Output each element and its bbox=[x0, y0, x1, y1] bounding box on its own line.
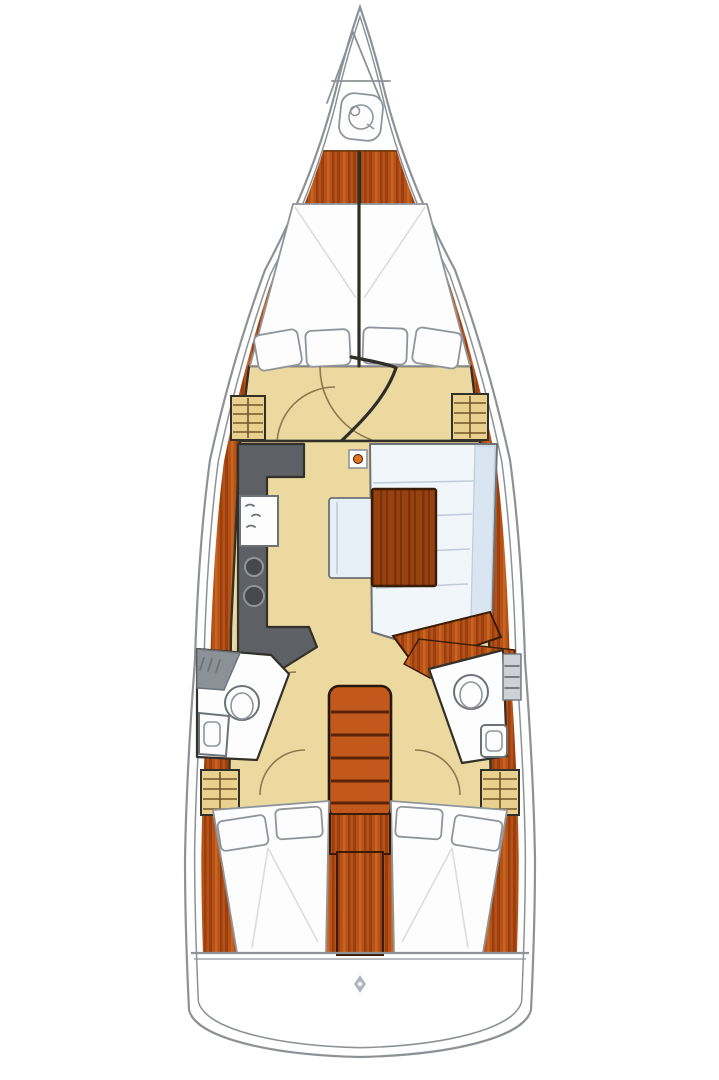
pillow bbox=[395, 806, 443, 839]
burner-icon bbox=[244, 586, 264, 606]
aft-cabins bbox=[213, 801, 507, 955]
toilet-icon bbox=[225, 686, 259, 720]
toilet-bowl bbox=[454, 675, 488, 709]
windlass-housing bbox=[338, 92, 385, 142]
forward-cabin-floor bbox=[240, 366, 480, 441]
salon-bench bbox=[329, 498, 373, 578]
pillow bbox=[451, 814, 503, 851]
pillow bbox=[411, 327, 462, 370]
engine-box-lower bbox=[337, 852, 383, 955]
forward-cabin bbox=[231, 152, 488, 446]
boat-floorplan bbox=[0, 0, 719, 1080]
salon-table bbox=[372, 489, 436, 586]
companionway-stairs bbox=[329, 686, 391, 818]
windlass-icon bbox=[338, 92, 385, 142]
engine-box-upper bbox=[330, 814, 390, 854]
companionway bbox=[329, 686, 391, 818]
burner-icon bbox=[245, 558, 263, 576]
toilet-icon bbox=[454, 675, 488, 709]
forward-locker-port bbox=[231, 396, 265, 440]
pillow bbox=[305, 329, 351, 367]
toilet-bowl bbox=[225, 686, 259, 720]
galley-sink bbox=[240, 496, 278, 546]
floorplan-svg bbox=[0, 0, 719, 1080]
pillow bbox=[217, 814, 269, 851]
sink-counter bbox=[481, 725, 507, 757]
pillow bbox=[253, 328, 303, 371]
sofa-back-cushion bbox=[471, 446, 495, 617]
pillow bbox=[275, 806, 323, 839]
forward-locker-starboard bbox=[452, 394, 488, 440]
logo-dot bbox=[358, 982, 362, 986]
mast-step-dot bbox=[354, 455, 363, 464]
